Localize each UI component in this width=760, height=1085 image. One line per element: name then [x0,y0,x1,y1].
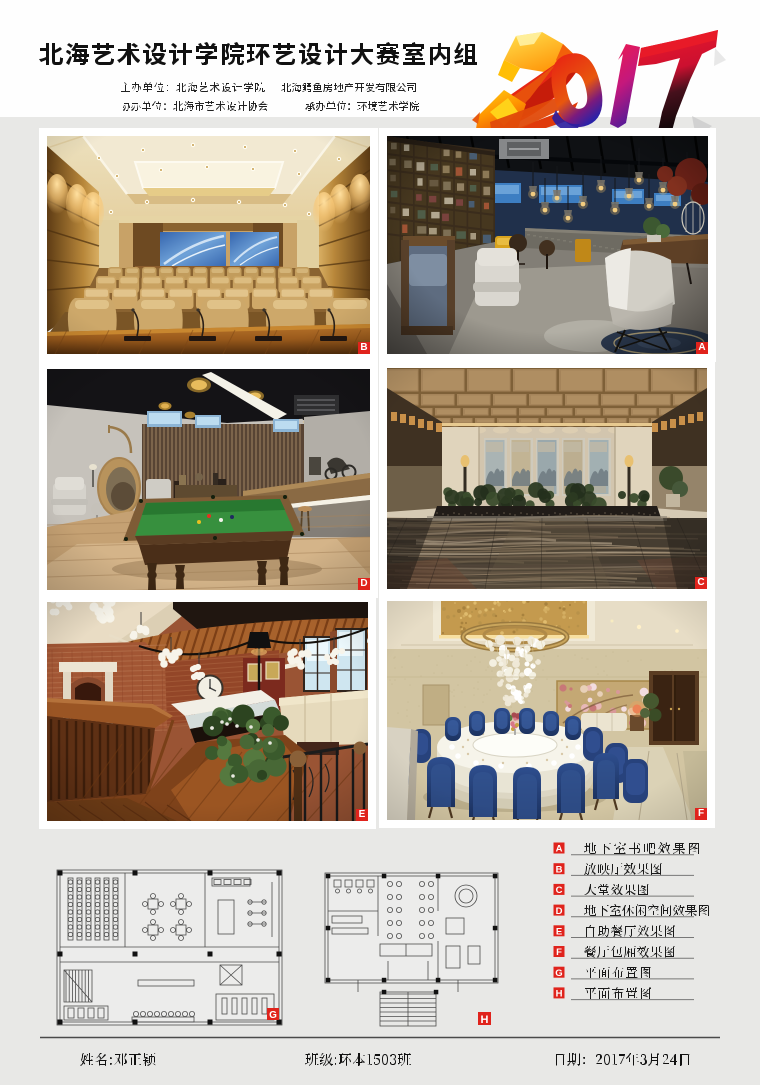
svg-text:C: C [556,885,563,896]
svg-text:D: D [556,906,563,917]
svg-text:H: H [556,989,563,1000]
svg-text:E: E [556,927,562,938]
svg-text:F: F [556,947,562,958]
svg-text:G: G [269,1010,277,1021]
svg-text:B: B [556,864,563,875]
svg-text:A: A [556,844,563,855]
svg-text:G: G [555,968,562,979]
svg-text:H: H [481,1014,489,1026]
